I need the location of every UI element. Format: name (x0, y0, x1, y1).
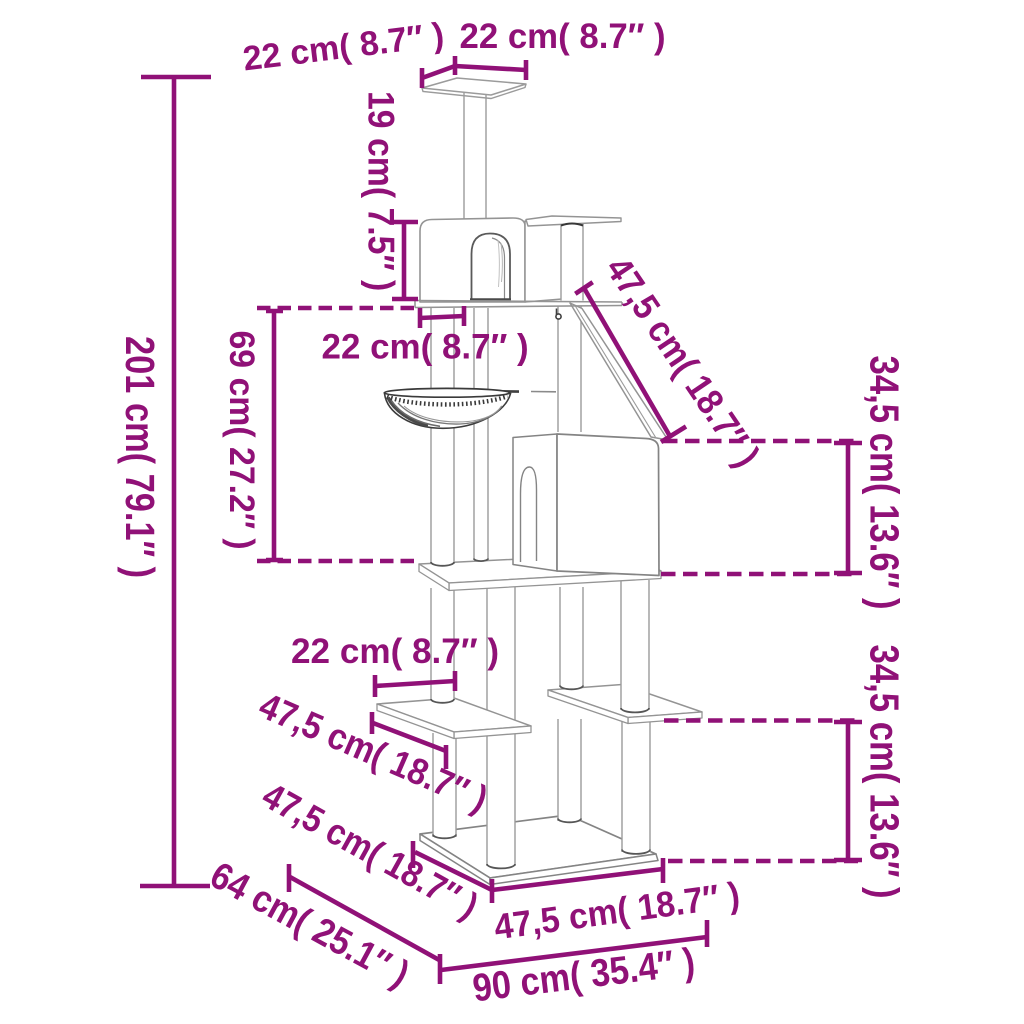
svg-text:19 cm( 7.5″ ): 19 cm( 7.5″ ) (361, 91, 402, 291)
svg-text:201 cm( 79.1″ ): 201 cm( 79.1″ ) (117, 336, 163, 578)
svg-text:22 cm( 8.7″ ): 22 cm( 8.7″ ) (460, 17, 666, 56)
svg-text:34,5 cm( 13.6″ ): 34,5 cm( 13.6″ ) (862, 356, 908, 610)
svg-text:22 cm( 8.7″ ): 22 cm( 8.7″ ) (241, 16, 446, 78)
svg-text:69 cm( 27.2″ ): 69 cm( 27.2″ ) (222, 331, 261, 550)
svg-text:22 cm( 8.7″ ): 22 cm( 8.7″ ) (322, 328, 529, 367)
svg-text:22 cm( 8.7″ ): 22 cm( 8.7″ ) (291, 632, 499, 671)
svg-text:34,5 cm( 13.6″ ): 34,5 cm( 13.6″ ) (862, 645, 908, 899)
